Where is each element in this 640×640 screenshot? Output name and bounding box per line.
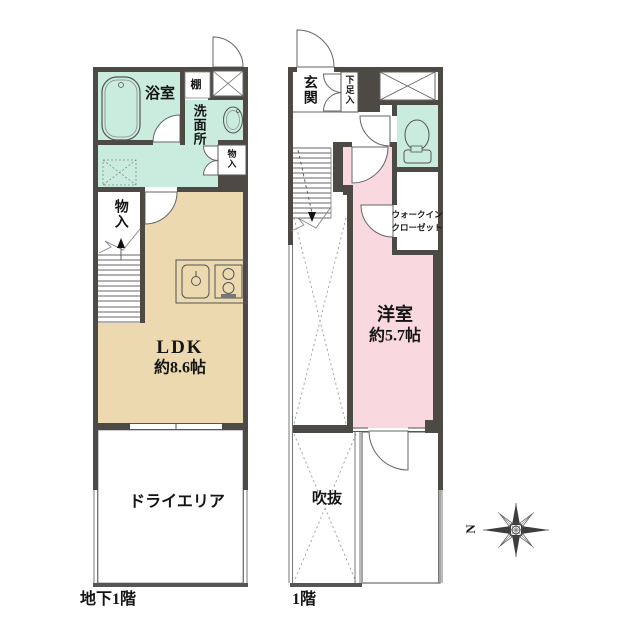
stairs-down-path xyxy=(298,150,312,213)
washroom-area-lower xyxy=(98,145,185,187)
room-label-entrance: 玄関 xyxy=(301,75,316,105)
room-label-shelf: 棚 xyxy=(191,80,202,92)
room-label-ldk-size: 約8.6帖 xyxy=(154,361,206,378)
door-arc-entrance xyxy=(297,30,334,67)
room-label-bedroom: 洋室 xyxy=(377,306,413,325)
floor-label-1f: 1階 xyxy=(292,592,316,609)
door-arc-shoebox-bottom xyxy=(324,93,343,112)
door-arc-b1-entrance xyxy=(213,37,243,67)
void-cross-lines xyxy=(294,218,356,582)
b1f-meter-box xyxy=(213,71,243,96)
room-label-shoe-storage: 下足入 xyxy=(344,75,353,105)
room-label-washroom: 洗面所 xyxy=(192,104,206,146)
compass-north-label: N xyxy=(464,524,478,533)
room-label-wic-line1: ウォークイン xyxy=(391,211,442,220)
room-label-bedroom-size: 約5.7帖 xyxy=(369,329,421,346)
compass-rose-icon xyxy=(483,503,549,557)
room-label-bath: 浴室 xyxy=(145,87,175,103)
room-label-ldk: LDK xyxy=(156,338,203,358)
stairs-1f xyxy=(291,148,331,231)
room-label-void: 吹抜 xyxy=(312,492,342,508)
room-label-dry-area: ドライエリア xyxy=(129,495,225,512)
room-label-storage-small: 物入 xyxy=(226,149,235,169)
room-label-wic-line2: クローゼット xyxy=(391,224,442,233)
floor-plan-drawing xyxy=(0,0,640,640)
stairs-down-arrow xyxy=(308,212,316,222)
door-arc-shoebox-top xyxy=(324,74,343,93)
floor-label-b1f: 地下1階 xyxy=(80,592,136,609)
f1-meter-box xyxy=(380,72,435,100)
window-ldk-south xyxy=(130,423,222,430)
door-arc-toilet xyxy=(360,116,390,146)
floor-plan-canvas: 浴室 棚 洗面所 物入 物入 LDK 約8.6帖 ドライエリア 地下1階 玄関 … xyxy=(0,0,640,640)
room-label-storage: 物入 xyxy=(112,199,127,229)
